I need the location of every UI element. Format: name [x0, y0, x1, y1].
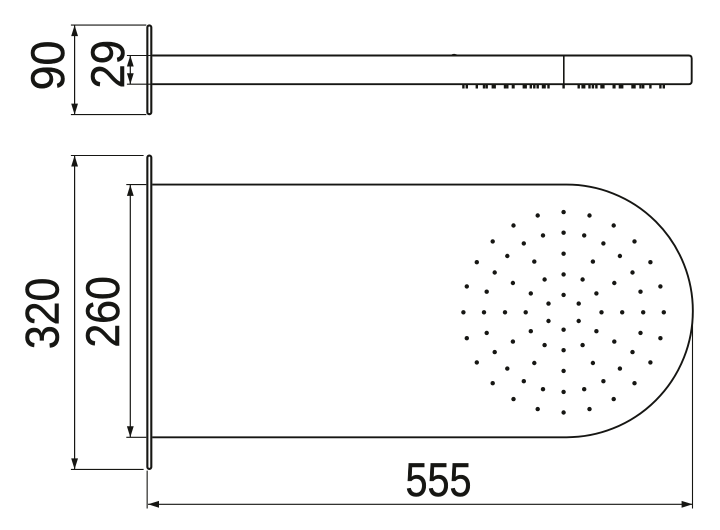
svg-text:90: 90: [21, 41, 74, 91]
svg-text:555: 555: [406, 453, 472, 506]
svg-text:29: 29: [81, 40, 134, 89]
svg-text:320: 320: [16, 278, 69, 350]
svg-text:260: 260: [76, 276, 129, 348]
